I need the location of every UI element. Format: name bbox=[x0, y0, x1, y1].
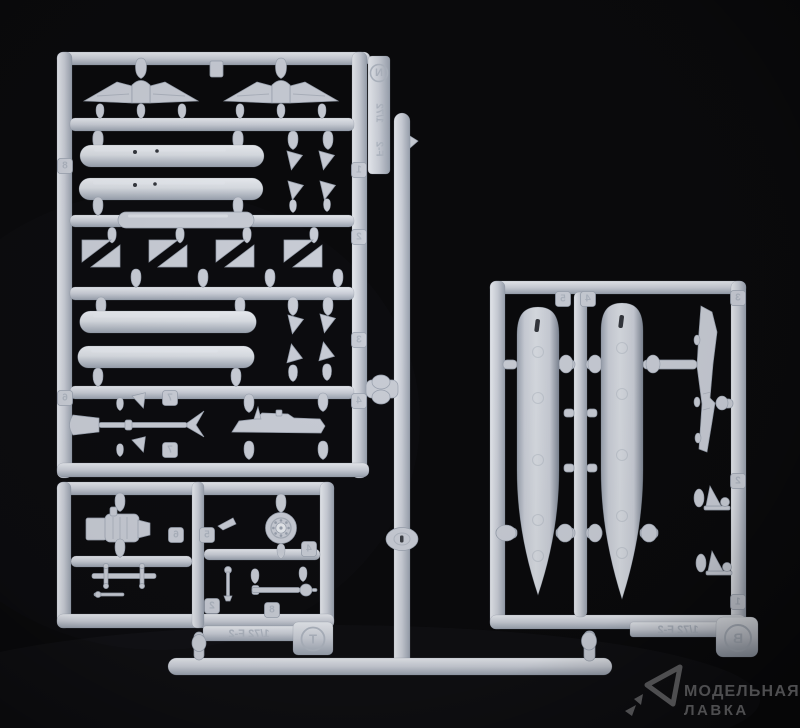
photo-canvas: N 1/72 F-2 bbox=[0, 0, 800, 728]
vignette-overlay bbox=[0, 0, 800, 728]
watermark-line1: МОДЕЛЬНАЯ bbox=[684, 683, 800, 700]
watermark-line2: ЛАВКА bbox=[684, 702, 749, 719]
sprue-photo: N 1/72 F-2 bbox=[0, 0, 800, 728]
